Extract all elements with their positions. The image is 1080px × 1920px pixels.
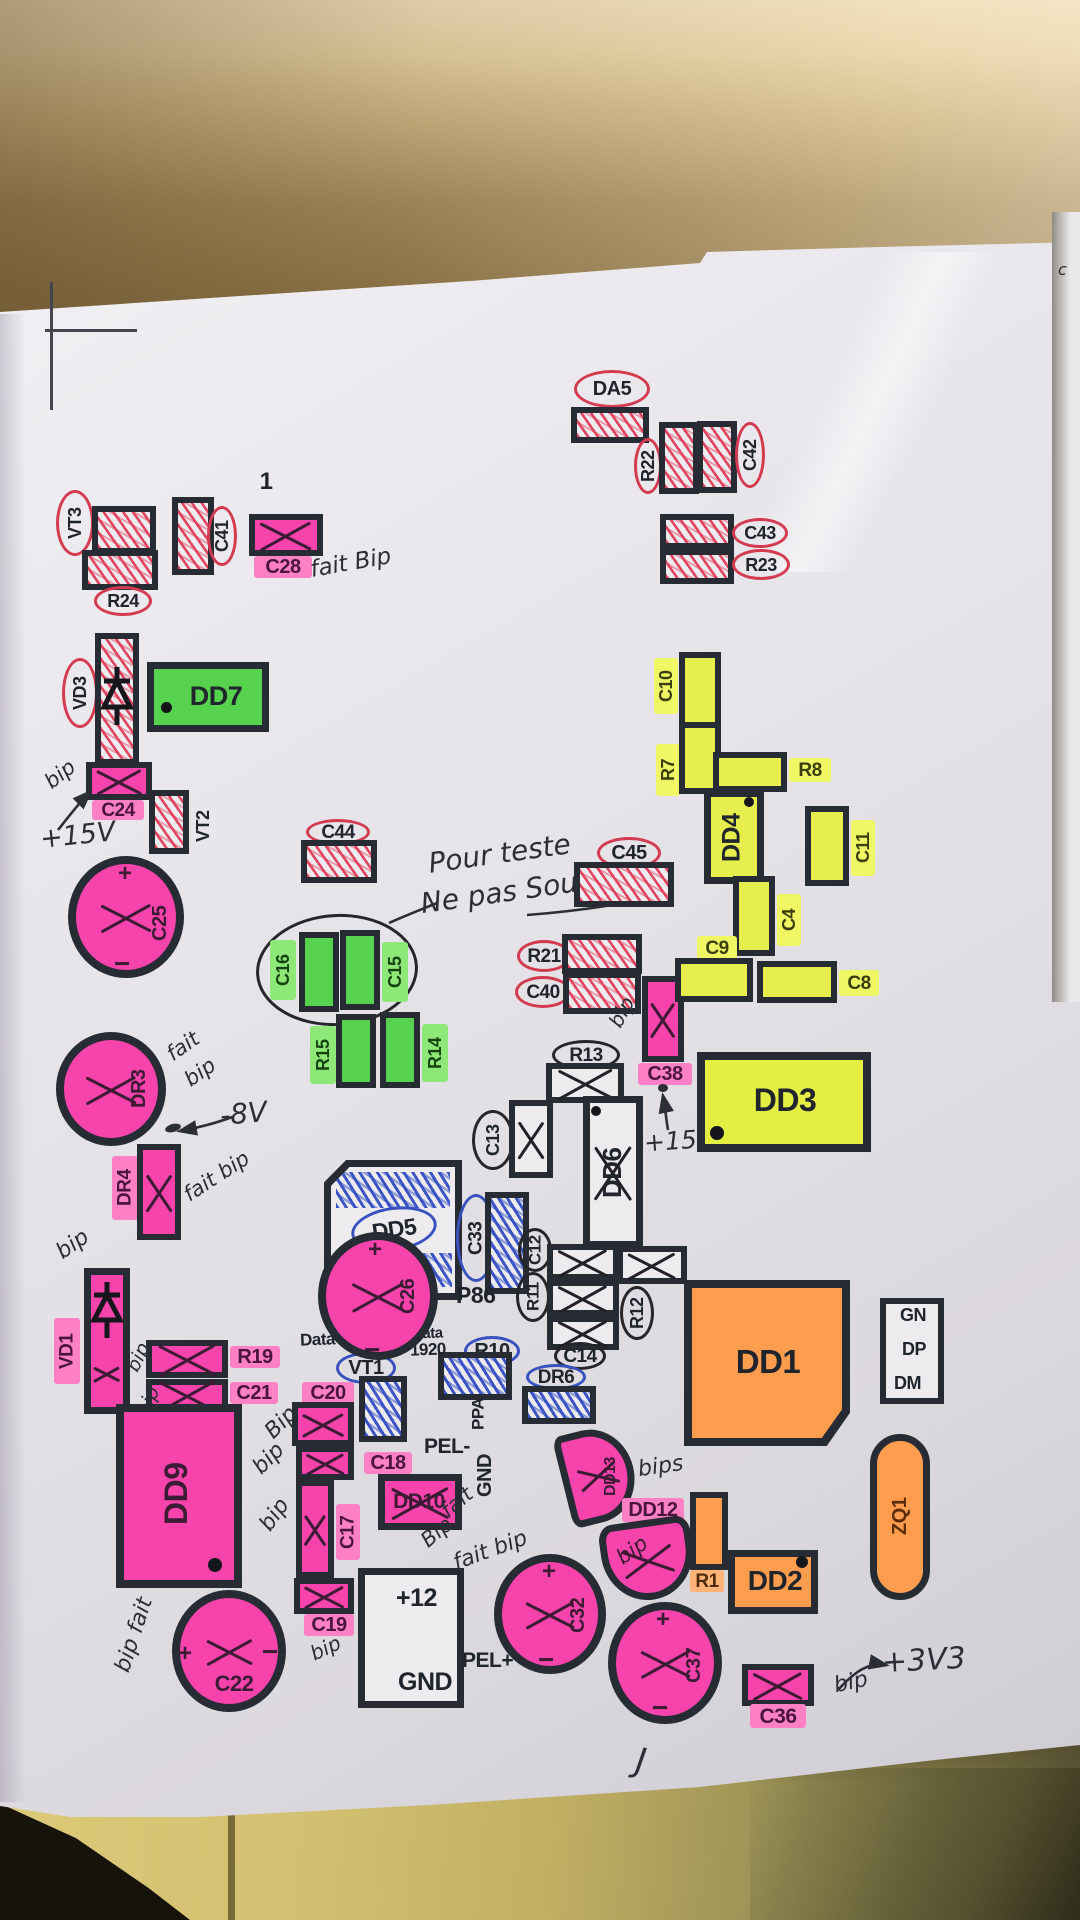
da5-pad (571, 407, 649, 443)
c24-pad (86, 762, 152, 800)
r15-pad (336, 1014, 376, 1088)
dd2-label: DD2 (744, 1562, 806, 1600)
x-mark (144, 1153, 173, 1230)
gnd-vertical-text: GND (474, 1446, 496, 1506)
r15-label: R15 (310, 1026, 336, 1084)
c26-plus: + (368, 1238, 382, 1262)
corner-mark: c (1058, 262, 1067, 278)
c38-label: C38 (638, 1063, 692, 1085)
x-mark (516, 1109, 545, 1170)
c17-label: C17 (336, 1504, 360, 1560)
c25-label: C25 (150, 892, 170, 954)
x-mark (302, 1585, 346, 1607)
x-mark (257, 521, 314, 549)
vt2-pad (149, 790, 189, 854)
c22-plus: + (178, 1642, 192, 1666)
dd7-label: DD7 (178, 676, 254, 716)
c9-pad (675, 958, 753, 1002)
dd2-pin1-dot (796, 1556, 808, 1568)
vd1-pad (84, 1268, 130, 1414)
dd9-label: DD9 (158, 1454, 194, 1534)
r1-label: R1 (690, 1570, 724, 1592)
x-mark (94, 769, 144, 793)
c26-minus: − (364, 1336, 380, 1364)
dd5-hatch-top (336, 1172, 450, 1208)
pel-plus-text: PEL+ (462, 1650, 513, 1671)
x-mark (300, 1409, 346, 1438)
x-mark (92, 1346, 121, 1400)
pel-minus-text: PEL- (424, 1436, 470, 1457)
vt2-label: VT2 (192, 796, 214, 856)
dd4-pin1-dot (744, 797, 754, 807)
r7-label: R7 (656, 744, 680, 796)
r8-label: R8 (789, 758, 831, 782)
dr3-label: DR3 (128, 1058, 150, 1120)
crossed-pad-1 (547, 1244, 619, 1280)
c43-label-circle: C43 (732, 518, 788, 548)
vd3-label-circle: VD3 (62, 658, 98, 728)
registration-cross-horizontal (45, 329, 137, 332)
x-mark (625, 1253, 678, 1277)
p86-text: P86 (456, 1284, 495, 1307)
bottom-right-dark-corner (750, 1768, 1080, 1920)
c37-label: C37 (684, 1634, 704, 1696)
vt1-pad (359, 1376, 407, 1442)
dr4-pad (137, 1144, 181, 1240)
registration-cross-vertical (50, 282, 53, 410)
r1-pad (690, 1492, 728, 1570)
c26-label: C26 (398, 1264, 418, 1328)
c22-label: C22 (204, 1672, 264, 1696)
da5-label-circle: DA5 (574, 370, 650, 408)
crossed-pad-2 (547, 1280, 619, 1316)
dd4-label: DD4 (716, 806, 748, 870)
x-mark (750, 1671, 805, 1699)
x-mark (555, 1287, 610, 1309)
vt3-pad-upper (92, 506, 156, 554)
r23-label-circle: R23 (732, 549, 790, 580)
r24-label-circle: R24 (94, 586, 152, 616)
c43-pad (660, 514, 734, 549)
c37-minus: − (652, 1694, 668, 1722)
c32-plus: + (542, 1560, 556, 1584)
r19-label: R19 (230, 1346, 280, 1368)
r12-label-circle: R12 (620, 1286, 654, 1340)
c21-label: C21 (230, 1382, 278, 1404)
c15-pad (340, 930, 380, 1010)
x-mark (98, 887, 154, 946)
x-mark (555, 1070, 616, 1096)
x-mark (555, 1251, 610, 1273)
c32-minus: − (538, 1646, 554, 1674)
r21-pad (562, 934, 642, 974)
dd9-pin1-dot (208, 1558, 222, 1572)
plus15v-left-note: +15V (39, 818, 117, 853)
c13-pad (509, 1100, 553, 1178)
c18-pad (296, 1446, 354, 1480)
pin-dm-label: DM (894, 1374, 921, 1392)
c42-pad (697, 421, 737, 493)
zq1-label: ZQ1 (888, 1488, 912, 1544)
gnd-text: GND (398, 1670, 452, 1695)
pin-gn-label: GN (900, 1306, 926, 1324)
dr4-label: DR4 (112, 1156, 138, 1220)
c8-pad (757, 961, 837, 1003)
c16-pad (299, 932, 339, 1012)
c11-pad (805, 806, 849, 886)
r11-label-circle: R11 (516, 1272, 550, 1322)
dd13-label: DD13 (600, 1448, 622, 1506)
c37-plus: + (656, 1608, 670, 1632)
pin-dp-label: DP (902, 1340, 926, 1358)
dd6-label: DD6 (598, 1138, 626, 1208)
r19-pad (146, 1340, 228, 1378)
r14-pad (380, 1012, 420, 1088)
c20-label: C20 (302, 1382, 354, 1404)
c8-label: C8 (839, 970, 879, 996)
c4-pad (733, 876, 775, 956)
x-mark (303, 1489, 327, 1568)
c25-minus: − (114, 950, 130, 978)
pin1-marker: 1 (256, 470, 276, 494)
photo-of-annotated-pcb-plan: c VT3 R24 C41 1 C28 fait Bip DA5 R22 C42… (0, 0, 1080, 1920)
dd3-label: DD3 (740, 1076, 830, 1124)
vt3-label-circle: VT3 (56, 490, 94, 556)
r22-label-circle: R22 (634, 438, 662, 494)
c11-label: C11 (851, 820, 875, 876)
vt3-pad-lower (82, 550, 158, 590)
c4-label: C4 (777, 894, 801, 946)
c9-label: C9 (697, 936, 737, 960)
c42-label-circle: C42 (735, 422, 765, 488)
c10-label: C10 (654, 658, 678, 714)
x-mark (649, 985, 677, 1053)
c36-pad (742, 1664, 814, 1706)
c15-label: C15 (382, 942, 408, 1002)
dd1-label: DD1 (728, 1336, 808, 1386)
dd7-pin1-dot (161, 702, 172, 713)
dd6-pin1-dot (591, 1106, 601, 1116)
minus8v-note: -8V (219, 1098, 268, 1130)
c44-pad (301, 840, 377, 883)
c22-minus: − (262, 1638, 278, 1666)
c45-pad (574, 862, 674, 907)
vd3-pad (95, 633, 139, 765)
c36-label: C36 (750, 1704, 806, 1728)
c19-pad (294, 1578, 354, 1614)
second-sheet-edge (1052, 212, 1080, 1002)
c16-label: C16 (270, 940, 296, 1000)
r12-pad (617, 1246, 687, 1284)
plus3v3-note: +3V3 (881, 1644, 966, 1678)
c32-label: C32 (568, 1584, 588, 1646)
c13-label-circle: C13 (472, 1110, 514, 1170)
r22-pad (659, 422, 699, 494)
dd3-pin1-dot (710, 1126, 724, 1140)
x-mark (555, 1323, 610, 1343)
ppa-text: PPA (468, 1388, 488, 1440)
c17-pad (296, 1480, 334, 1578)
c20-pad (292, 1402, 354, 1446)
r14-label: R14 (422, 1024, 448, 1082)
x-mark (155, 1347, 219, 1371)
paper-left-edge-shadow (0, 314, 26, 1802)
ledge-crack-line (228, 1806, 235, 1920)
c18-label: C18 (364, 1452, 412, 1474)
x-mark (155, 1386, 219, 1404)
dr6-pad (522, 1386, 596, 1424)
c28-label: C28 (254, 556, 312, 578)
c10-pad (679, 652, 721, 728)
plus12-text: +12 (396, 1586, 437, 1611)
c25-plus: + (118, 862, 132, 886)
r8-pad (713, 752, 787, 792)
c28-pad (249, 514, 323, 556)
r23-pad (660, 549, 734, 584)
x-mark (304, 1453, 346, 1473)
vd1-label: VD1 (54, 1318, 80, 1384)
c41-label-circle: C41 (207, 506, 237, 566)
